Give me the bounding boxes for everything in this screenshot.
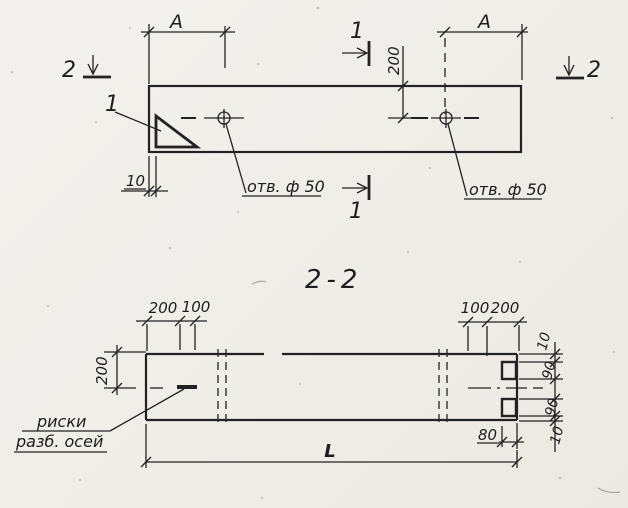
axis-centerline	[150, 387, 543, 388]
corner-triangle	[156, 116, 197, 147]
dim-notch-label: 80	[478, 426, 497, 444]
dim-top-right-100: 100	[461, 299, 490, 317]
hole-left	[181, 109, 244, 128]
dim-a-left: A	[141, 11, 235, 84]
drawing-sheet: 1 отв. ф 50 отв. ф 50	[0, 0, 628, 508]
technical-drawing: 1 отв. ф 50 отв. ф 50	[0, 0, 628, 508]
dim-chain-10-top: 10	[534, 331, 554, 352]
axis-note-line1: риски	[36, 412, 86, 431]
dim-a-right: A	[437, 11, 528, 114]
hole-right	[411, 109, 479, 128]
dim-hole-offset: 200	[385, 46, 412, 123]
dim-a-right-label: A	[476, 11, 491, 33]
dims-top-left: 200 100	[136, 298, 210, 351]
section-1-top-label: 1	[350, 19, 364, 44]
section-1-bottom-label: 1	[349, 199, 363, 224]
section-2-left-label: 2	[62, 58, 76, 83]
section-view-title: 2-2	[305, 265, 362, 295]
notch-bottom	[502, 399, 516, 416]
dim-hole-offset-label: 200	[385, 46, 403, 75]
dim-length-label: L	[324, 441, 335, 462]
dim-notch-80: 80	[477, 423, 524, 449]
notch-top	[502, 362, 516, 379]
section-marker-1-bottom: 1	[342, 175, 369, 224]
dim-top-left-200: 200	[149, 299, 178, 317]
hole-callout-right: отв. ф 50	[448, 124, 547, 199]
hole-label-right: отв. ф 50	[469, 180, 547, 199]
dims-right-chain: 10 90 90 10	[519, 331, 567, 452]
dim-height-left: 200	[93, 345, 146, 395]
section-2-right-label: 2	[587, 58, 601, 83]
dim-chain-90-bottom: 90	[542, 397, 562, 418]
section-beam-outline	[146, 354, 517, 420]
dim-top-left-100: 100	[182, 298, 211, 316]
dim-top-right-200: 200	[491, 299, 520, 317]
dim-edge-gap-label: 10	[126, 172, 145, 190]
dim-edge-gap: 10	[121, 156, 168, 197]
section-marker-2-left: 2	[62, 55, 111, 83]
axis-note-line2: разб. осей	[15, 432, 103, 451]
hole-callout-left: отв. ф 50	[226, 124, 325, 196]
detail-callout-label: 1	[105, 92, 119, 117]
section-marker-2-right: 2	[556, 56, 601, 83]
paper-specks	[11, 7, 620, 500]
plan-view: 1 отв. ф 50 отв. ф 50	[62, 11, 601, 224]
dim-a-left-label: A	[168, 11, 183, 33]
section-view: 2-2 риски	[14, 265, 567, 468]
dim-length: L	[141, 424, 522, 468]
hole-label-left: отв. ф 50	[247, 177, 325, 196]
break-lines	[218, 349, 447, 425]
section-marker-1-top: 1	[342, 19, 369, 66]
dim-chain-10-bottom: 10	[547, 425, 567, 446]
dim-height-left-label: 200	[93, 356, 111, 385]
dims-top-right: 100 200	[458, 299, 527, 356]
